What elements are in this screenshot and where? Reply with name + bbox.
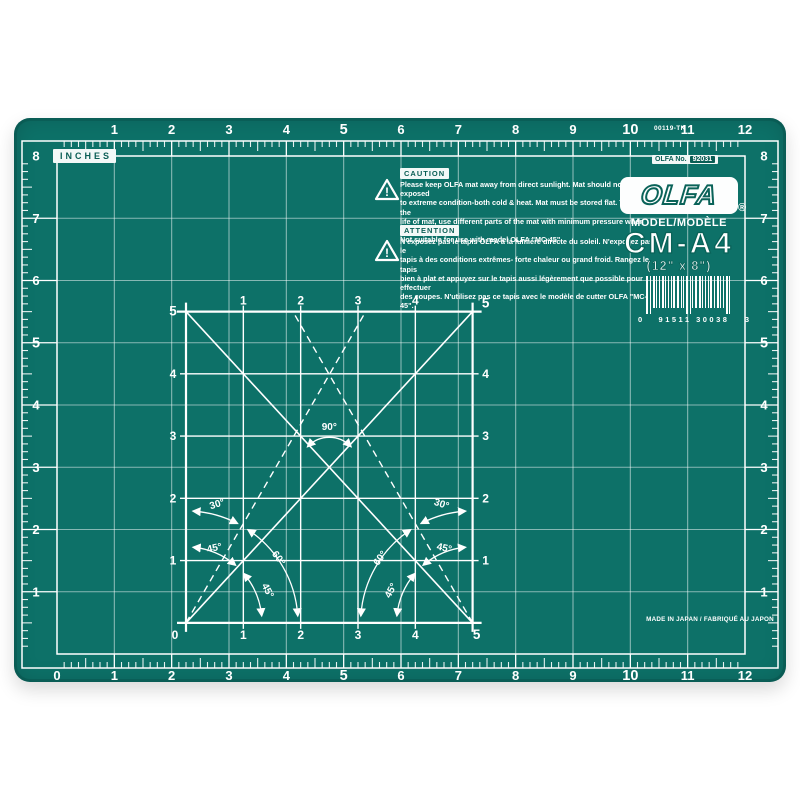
barcode-bar	[708, 276, 709, 308]
square-number: 1	[482, 554, 489, 568]
square-number: 3	[355, 294, 362, 308]
barcode-bar	[683, 276, 684, 308]
barcode-bar	[726, 276, 728, 314]
square-number: 0	[172, 628, 179, 642]
barcode-bar	[665, 276, 666, 308]
barcode-left-digit: 0	[638, 315, 642, 324]
olfa-logo-text: OLFA	[639, 180, 718, 211]
barcode-bar	[729, 276, 730, 314]
attention-title: ATTENTION	[400, 225, 459, 236]
warning-triangle-icon: !	[374, 178, 400, 202]
ruler-number: 3	[760, 460, 767, 475]
ruler-number: 2	[760, 522, 767, 537]
ruler-number: 9	[569, 668, 576, 682]
olfa-number-label: OLFA No.	[655, 156, 687, 163]
angle-arc	[397, 574, 414, 615]
ruler-number: 9	[569, 122, 576, 137]
square-number: 2	[297, 294, 304, 308]
ruler-number: 6	[760, 273, 767, 288]
attention-line: bien à plat et appuyez sur le tapis auss…	[400, 274, 658, 292]
barcode-bar	[692, 276, 693, 308]
square-number: 1	[170, 554, 177, 568]
ruler-number: 1	[111, 668, 118, 682]
angle-label: 30°	[432, 497, 450, 512]
ruler-number: 8	[32, 149, 39, 164]
barcode-bar	[714, 276, 715, 308]
svg-text:!: !	[385, 185, 389, 199]
ruler-number: 2	[32, 522, 39, 537]
ruler-number: 8	[512, 122, 519, 137]
barcode-bar	[650, 276, 651, 314]
barcode-bar	[710, 276, 712, 308]
registered-mark: ®	[738, 202, 746, 214]
ruler-number: 7	[455, 122, 462, 137]
barcode-bars	[646, 276, 742, 316]
square-number: 2	[482, 491, 489, 505]
ruler-number: 7	[32, 211, 39, 226]
square-number: 4	[412, 628, 419, 642]
barcode-bar	[668, 276, 669, 308]
angle-label: 45°	[383, 582, 400, 601]
ruler-number: 6	[397, 122, 404, 137]
square-number: 5	[473, 627, 481, 642]
made-in-label: MADE IN JAPAN / FABRIQUÉ AU JAPON	[642, 616, 778, 623]
barcode-bar	[677, 276, 679, 308]
ruler-number: 3	[225, 122, 232, 137]
barcode-bar	[705, 276, 706, 308]
ruler-number: 6	[397, 668, 404, 682]
angle-label: 60°	[269, 549, 287, 568]
barcode: 0 91511 30038 3	[640, 276, 744, 322]
ruler-number: 10	[622, 122, 638, 138]
attention-line: des coupes. N'utilisez pas ce tapis avec…	[400, 292, 658, 310]
square-number: 3	[482, 429, 489, 443]
angle-label: 45°	[206, 542, 223, 556]
ruler-number: 1	[32, 584, 39, 599]
square-number: 5	[169, 304, 177, 319]
square-number: 1	[240, 628, 247, 642]
caution-title: CAUTION	[400, 168, 449, 179]
square-number: 2	[297, 628, 304, 642]
barcode-right-digit: 3	[745, 315, 749, 324]
angle-label: 30°	[208, 497, 226, 512]
ruler-number: 4	[283, 122, 291, 137]
angle-arc	[244, 574, 261, 615]
olfa-number-chip: OLFA No. 92031	[652, 155, 718, 164]
ruler-number: 11	[681, 668, 695, 682]
product-photo: 1234567891011120123456789101112876543218…	[0, 0, 800, 800]
angle-arcs	[194, 437, 465, 615]
barcode-bar	[671, 276, 672, 308]
part-code: 00119-TK	[654, 125, 686, 132]
angle-arc	[249, 530, 298, 615]
ruler-number: 12	[738, 122, 752, 137]
barcode-bar	[681, 276, 682, 308]
mat-size: (12" x 8")	[605, 259, 753, 273]
barcode-bar	[686, 276, 688, 314]
barcode-bar	[723, 276, 724, 308]
barcode-bar	[653, 276, 655, 308]
ruler-number: 2	[168, 122, 175, 137]
square-number: 4	[170, 367, 177, 381]
ruler-number: 5	[760, 335, 768, 351]
barcode-bar	[656, 276, 657, 308]
angle-label: 45°	[259, 582, 276, 601]
cutting-mat: 1234567891011120123456789101112876543218…	[14, 118, 786, 682]
barcode-center-digits: 91511 30038	[640, 315, 744, 324]
ruler-number: 5	[340, 122, 348, 138]
warning-triangle-icon: !	[374, 239, 400, 263]
ruler-number: 1	[111, 122, 118, 137]
svg-text:!: !	[385, 246, 389, 260]
ruler-number: 4	[283, 668, 291, 682]
barcode-bar	[720, 276, 721, 308]
ruler-number: 12	[738, 668, 752, 682]
ruler-number: 3	[32, 460, 39, 475]
ruler-number: 8	[760, 149, 767, 164]
square-number: 3	[170, 429, 177, 443]
inches-label: INCHES	[53, 149, 116, 163]
ruler-number: 2	[168, 668, 175, 682]
ruler-number: 8	[512, 668, 519, 682]
olfa-logo: OLFA	[620, 177, 738, 214]
square-number: 1	[240, 294, 247, 308]
square-number: 4	[482, 367, 489, 381]
barcode-digits: 0 91511 30038 3	[640, 315, 744, 324]
ruler-number: 7	[455, 668, 462, 682]
model-name: CM-A4	[605, 227, 753, 261]
angle-label: 60°	[372, 549, 390, 568]
ruler-number: 5	[340, 668, 348, 682]
barcode-bar	[690, 276, 691, 314]
ruler-number: 3	[225, 668, 232, 682]
ruler-number: 5	[32, 335, 40, 351]
barcode-bar	[646, 276, 648, 314]
ruler-number: 1	[760, 584, 767, 599]
ruler-number: 4	[32, 398, 40, 413]
barcode-bar	[673, 276, 675, 308]
ruler-number: 6	[32, 273, 39, 288]
olfa-number-value: 92031	[690, 156, 715, 163]
square-number: 2	[170, 491, 177, 505]
square-number: 3	[355, 628, 362, 642]
angle-label: 90°	[322, 422, 337, 433]
barcode-bar	[699, 276, 701, 308]
angle-arc	[194, 511, 237, 523]
ruler-number: 0	[53, 668, 60, 682]
barcode-bar	[695, 276, 697, 308]
barcode-bar	[659, 276, 660, 308]
ruler-number: 4	[760, 398, 768, 413]
angle-label: 45°	[436, 542, 453, 556]
angle-arc	[361, 530, 410, 615]
barcode-bar	[702, 276, 703, 308]
barcode-bar	[717, 276, 719, 308]
ruler-number: 10	[622, 668, 638, 682]
barcode-bar	[662, 276, 664, 308]
ruler-number: 7	[760, 211, 767, 226]
